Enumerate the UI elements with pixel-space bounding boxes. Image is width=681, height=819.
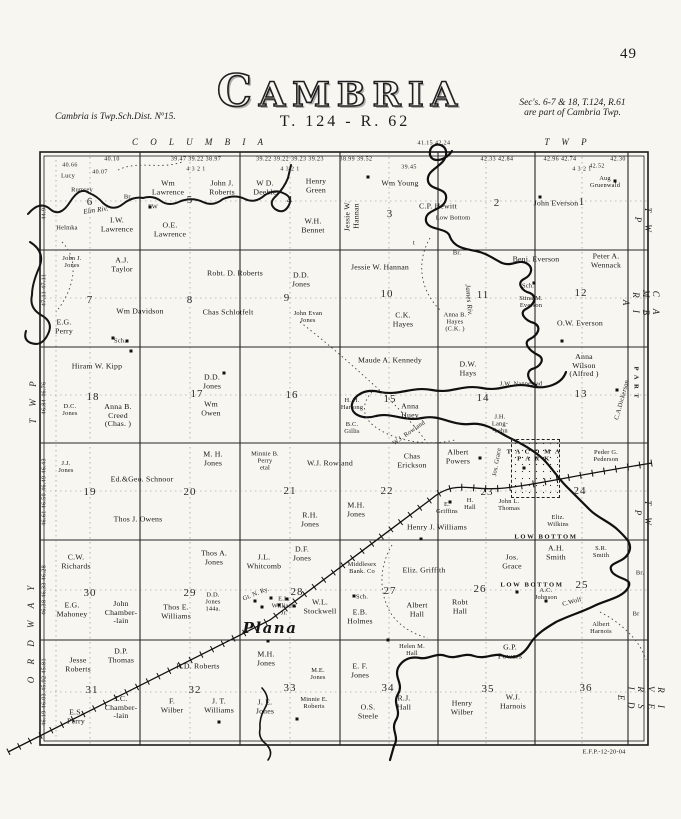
school-label: Sch.	[114, 337, 126, 344]
parcel-owner-label: Wm Lawrence	[152, 179, 184, 196]
section-number: 30	[84, 587, 97, 599]
surveyor-credit: E.F.P.-12-20-04	[582, 748, 625, 755]
parcel-owner-label: John L. Thomas	[498, 498, 520, 512]
parcel-owner-label: Albert Harnois	[590, 621, 612, 635]
parcel-owner-label: Chas Erickson	[397, 452, 426, 469]
parcel-owner-label: Jessie W. Hannan	[351, 264, 409, 273]
parcel-owner-label: John Everson	[534, 200, 579, 209]
parcel-owner-label: J.H. Lang- -behn	[492, 413, 508, 434]
park-label: T A C O M A P A R K	[507, 449, 562, 464]
parcel-owner-label: Eliz. Wilkins	[547, 514, 568, 528]
section-number: 2	[494, 197, 501, 209]
acreage: 39.47 39.22 38.97	[171, 157, 221, 164]
edge-columbia: C O L U M B I A	[132, 137, 268, 147]
farmstead-marker	[516, 591, 519, 594]
farmstead-marker	[539, 196, 542, 199]
section-number: 4	[287, 194, 294, 206]
section-number: 33	[284, 682, 297, 694]
town-label: Plana	[243, 619, 298, 637]
acreage: 41.15 42.24	[418, 141, 451, 148]
parcel-owner-label: W D. Deeble	[253, 179, 276, 196]
farmstead-marker	[267, 640, 270, 643]
river-james	[352, 145, 630, 760]
parcel-owner-label: O.S. Steele	[358, 703, 378, 720]
section-number: 35	[482, 683, 495, 695]
farmstead-marker	[218, 721, 221, 724]
section-number: 29	[184, 587, 197, 599]
farmstead-marker	[479, 457, 482, 460]
edge-twp-west: T W P	[28, 376, 38, 423]
parcel-owner-label: Peter A. Wennack	[591, 252, 621, 269]
edge-twp-north: T W P	[544, 137, 591, 147]
section-number: 7	[87, 294, 94, 306]
parcel-owner-label: F. Wilber	[161, 697, 184, 714]
parcel-owner-label: Wm Young	[381, 180, 418, 189]
parcel-owner-label: C.P. Hewitt	[419, 203, 457, 212]
parcel-owner-label: J.C. Chamber- -lain	[105, 695, 138, 721]
parcel-owner-label: C.K. Hayes	[393, 311, 414, 328]
parcel-owner-label: J.W. Nannestad	[500, 380, 543, 387]
lot-numbers: 4 3 2 1	[280, 167, 299, 174]
parcel-owner-label: J. T. Williams	[204, 697, 234, 714]
parcel-owner-label: Robt Hall	[452, 598, 468, 615]
acreage: 42.33 42.84	[481, 157, 514, 164]
plat-map-page: 49 CAMBRIA T. 124 - R. 62 Cambria is Twp…	[0, 0, 681, 819]
acreage: 46.19 46.03 45.92 45.81	[42, 658, 49, 726]
bridge-label: Br.	[124, 193, 132, 200]
parcel-owner-label: Thos A. Jones	[201, 549, 227, 566]
parcel-owner-label: H. H. Hartong	[341, 397, 363, 411]
parcel-owner-label: Henry Wilber	[451, 699, 474, 716]
section-number: 14	[477, 392, 490, 404]
parcel-owner-label: G.P. Powers	[498, 643, 522, 660]
section-number: 10	[381, 288, 394, 300]
bridge-label: Br.	[453, 249, 461, 256]
parcel-owner-label: D.D. Jones	[292, 271, 310, 288]
section-number: 1	[579, 196, 586, 208]
parcel-owner-label: M.E. Jones	[310, 667, 325, 681]
farmstead-marker	[254, 600, 257, 603]
parcel-owner-label: W.J. Harnois	[500, 693, 526, 710]
parcel-owner-label: E.S. Perry	[67, 708, 85, 725]
parcel-owner-label: Helen M. Hall	[399, 643, 425, 657]
parcel-owner-label: M.H. Jones	[257, 650, 275, 667]
section-number: 18	[87, 391, 100, 403]
farmstead-marker	[387, 639, 390, 642]
parcel-owner-label: W.J. Rowland	[307, 460, 353, 469]
farmstead-marker	[270, 597, 273, 600]
acreage: 40.10	[104, 157, 120, 164]
parcel-owner-label: Minnie E. Roberts	[300, 696, 327, 710]
parcel-owner-label: D.D. Jones	[203, 373, 221, 390]
parcel-owner-label: S.R. Smith	[593, 545, 609, 559]
farmstead-marker	[286, 598, 289, 601]
edge-twp-east-1: T W P	[633, 203, 653, 241]
section-number: 23	[481, 486, 494, 498]
section-number: 19	[84, 486, 97, 498]
acreage: 42.30	[610, 157, 626, 164]
parcel-owner-label: E. F. Jones	[351, 662, 369, 679]
parcel-owner-label: Lucy	[61, 172, 75, 179]
parcel-owner-label: Anna Huey	[401, 402, 419, 419]
parcel-owner-label: C.W. Richards	[61, 553, 90, 570]
parcel-owner-label: D.C. Jones	[62, 403, 77, 417]
acreage: 46.38 46.33 46.28	[42, 565, 49, 615]
section-number: 13	[575, 388, 588, 400]
farmstead-marker	[293, 605, 296, 608]
parcel-owner-label: E. Griffins	[436, 501, 458, 515]
parcel-owner-label: O.E. Lawrence	[154, 221, 186, 238]
bridge-label: Br	[633, 610, 640, 617]
farmstead-marker	[523, 467, 526, 470]
farmstead-marker	[278, 604, 281, 607]
parcel-owner-label: Albert Powers	[446, 448, 470, 465]
parcel-owner-label: M. H. Jones	[203, 450, 222, 467]
edge-ordway: O R D W A Y	[26, 581, 36, 683]
parcel-owner-label: R.D. Roberts	[176, 663, 219, 672]
parcel-owner-label: D.F. Jones	[293, 545, 311, 562]
lot-numbers: 4 3 2 1	[186, 167, 205, 174]
acreage: 40.66	[62, 163, 78, 170]
section-number: 15	[384, 393, 397, 405]
parcel-owner-label: Minnie B. Perry etal	[251, 450, 279, 471]
section-number: 24	[574, 485, 587, 497]
parcel-owner-label: D.W. Hays	[460, 360, 477, 377]
farmstead-marker	[614, 180, 617, 183]
parcel-owner-label: D.P. Thomas	[108, 647, 134, 664]
parcel-owner-label: t	[413, 239, 415, 246]
parcel-owner-label: B.C. Gillis	[344, 421, 359, 435]
acreage: 39.22 39.22 39.23 39.23	[256, 157, 324, 164]
section-number: 20	[184, 486, 197, 498]
parcel-owner-label: Maude A. Kennedy	[358, 357, 422, 366]
parcel-owner-label: Ed.&Geo. Schnoor	[111, 476, 174, 485]
parcel-owner-label: Rumrey	[71, 186, 93, 193]
acreage: 44.93	[42, 204, 49, 220]
section-number: 31	[86, 684, 99, 696]
parcel-owner-label: Wm Davidson	[116, 308, 163, 317]
parcel-owner-label: Anna Wilson (Alfred )	[569, 353, 598, 379]
parcel-owner-label: A.J. Taylor	[111, 256, 132, 273]
parcel-owner-label: Peder G. Pederson	[593, 449, 618, 463]
parcel-owner-label: Henry J. Williams	[407, 524, 467, 533]
parcel-owner-label: Jos. Grace	[502, 553, 522, 570]
parcel-owner-label: R.J. Hall	[397, 694, 411, 711]
school-label: Sch.	[356, 593, 368, 600]
river-label: James Riv.	[463, 284, 474, 316]
acreage: 38.99 39.52	[340, 157, 373, 164]
farmstead-marker	[616, 389, 619, 392]
section-number: 16	[286, 389, 299, 401]
parcel-owner-label: John Evan Jones	[294, 310, 323, 324]
parcel-owner-label: Anna B. Hayes (C.K. )	[444, 311, 467, 332]
parcel-owner-label: M.H. Jones	[347, 501, 365, 518]
section-number: 5	[187, 194, 194, 206]
section-number: 25	[576, 579, 589, 591]
farmstead-marker	[126, 340, 129, 343]
section-number: 32	[189, 684, 202, 696]
farmstead-marker	[223, 372, 226, 375]
parcel-owner-label: I.W. Lawrence	[101, 216, 133, 233]
parcel-owner-label: Thos J. Owens	[114, 516, 163, 525]
parcel-owner-label: Albert Hall	[406, 601, 427, 618]
township-map: C O L U M B I AT W P41.15 42.24T W PO R …	[0, 0, 681, 819]
parcel-owner-label: John J. Roberts	[209, 179, 235, 196]
farmstead-marker	[261, 606, 264, 609]
section-number: 36	[580, 682, 593, 694]
parcel-owner-label: Robt. D. Roberts	[207, 270, 263, 279]
parcel-owner-label: Anna B. Creed (Chas. )	[104, 403, 131, 429]
acreage: 47.11 47.11	[42, 274, 49, 306]
farmstead-marker	[367, 176, 370, 179]
parcel-owner-label: R.H. Jones	[301, 511, 319, 528]
parcel-owner-label: John J. Jones	[62, 255, 81, 269]
parcel-owner-label: E.G. Perry	[55, 318, 73, 335]
parcel-owner-label: Thos E. Williams	[161, 603, 191, 620]
parcel-owner-label: Benj. Everson	[513, 256, 560, 265]
section-number: 21	[284, 485, 297, 497]
farmstead-marker	[130, 350, 133, 353]
section-number: 12	[575, 287, 588, 299]
farmstead-marker	[420, 538, 423, 541]
acreage: 39.45	[401, 165, 417, 172]
parcel-owner-label: Helmka	[56, 224, 77, 231]
parcel-owner-label: Jesse Roberts	[65, 656, 91, 673]
parcel-owner-label: John Chamber- -lain	[105, 600, 138, 626]
parcel-owner-label: J. E. Jones	[256, 698, 274, 715]
parcel-owner-label: LOW BOTTOM	[514, 533, 577, 540]
parcel-owner-label: E.B. Holmes	[347, 608, 372, 625]
section-number: 8	[187, 294, 194, 306]
parcel-owner-label: O.W. Everson	[557, 320, 603, 329]
farmstead-marker	[296, 718, 299, 721]
section-number: 3	[387, 208, 394, 220]
section-number: 17	[191, 388, 204, 400]
bridge-label: Br.	[636, 569, 644, 576]
farmstead-marker	[149, 206, 152, 209]
section-number: 26	[474, 583, 487, 595]
parcel-owner-label: Wm Owen	[201, 400, 220, 417]
farmstead-marker	[353, 595, 356, 598]
parcel-owner-label: Hiram W. Kipp	[72, 363, 122, 372]
edge-part: P A R T	[632, 367, 639, 400]
parcel-owner-label: Eliz. Griffith	[403, 567, 446, 576]
parcel-owner-label: Low Bottom	[436, 214, 471, 221]
section-number: 9	[284, 292, 291, 304]
farmstead-marker	[449, 501, 452, 504]
parcel-owner-label: E.G. Mahoney	[57, 601, 88, 618]
section-number: 22	[381, 485, 394, 497]
parcel-owner-label: D.D. Jones 144a.	[205, 591, 220, 612]
parcel-owner-label: Stina M. Everson	[519, 295, 543, 309]
acreage: 42.96 42.74	[544, 157, 577, 164]
parcel-owner-label: Henry Green	[306, 177, 327, 194]
acreage: 46.61 46.50 46.49 46.43	[42, 458, 49, 526]
section-number: 11	[477, 289, 490, 301]
edge-twp-east-2: T W P	[633, 496, 653, 534]
farmstead-marker	[112, 337, 115, 340]
parcel-owner-label: Middlesex Bank. Co	[348, 561, 377, 575]
acreage: 40.07	[92, 170, 108, 177]
parcel-owner-label: H. Hall	[464, 497, 476, 511]
farmstead-marker	[561, 340, 564, 343]
edge-cambria: C A M B R I A	[621, 285, 661, 325]
lot-numbers: 4 3 2 1	[572, 167, 591, 174]
section-number: 27	[384, 585, 397, 597]
farmstead-marker	[545, 600, 548, 603]
section-number: 34	[382, 682, 395, 694]
parcel-owner-label: Chas Schlotfelt	[203, 309, 254, 318]
parcel-owner-label: A.H. Smith	[546, 544, 566, 561]
acreage: 46.84 46.76	[42, 382, 49, 415]
parcel-owner-label: Jessie W. Hannan	[343, 201, 360, 231]
parcel-owner-label: J.L. Whitcomb	[247, 553, 282, 570]
parcel-owner-label: W.H. Bennet	[301, 217, 324, 234]
parcel-owner-label: W.L. Stockwell	[304, 598, 337, 615]
parcel-owner-label: J.J. Jones	[58, 460, 73, 474]
edge-riverside: R I V E R S I D E	[616, 680, 666, 720]
farmstead-marker	[533, 282, 536, 285]
